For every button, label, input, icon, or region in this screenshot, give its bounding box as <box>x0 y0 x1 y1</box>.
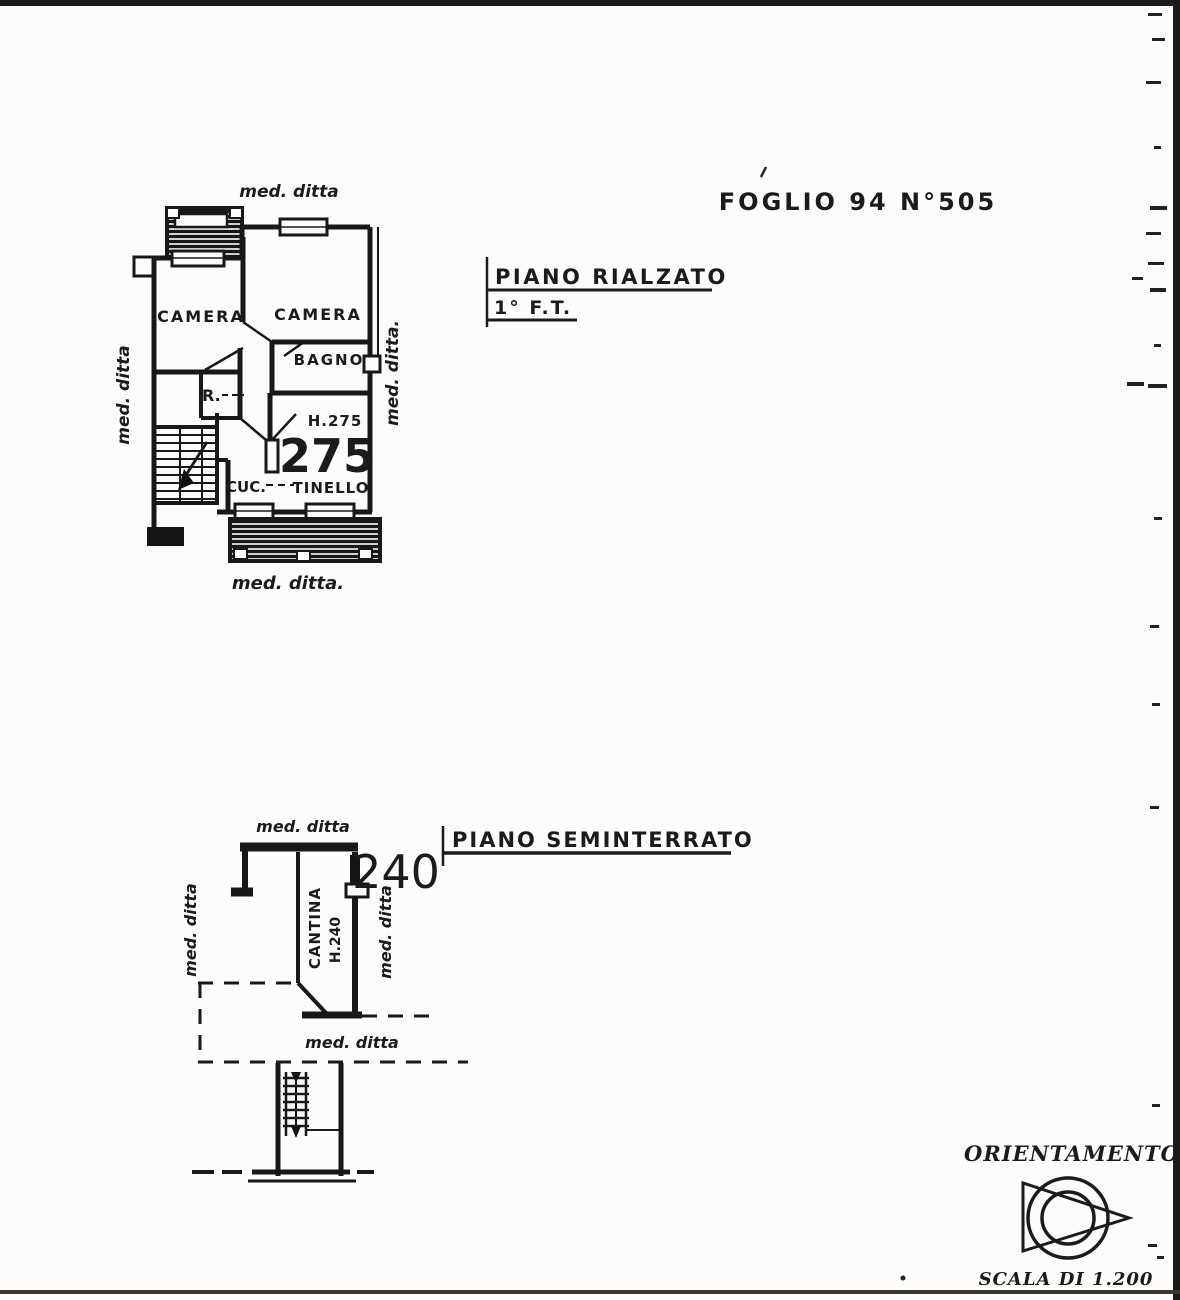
room-tinello: TINELLO <box>293 479 370 497</box>
height-value-big: 275 <box>279 429 375 483</box>
riser-label: R. <box>202 386 221 405</box>
balcony-window <box>175 214 227 227</box>
height-note: H.240 <box>328 917 344 964</box>
plan-rialzato-walls <box>134 208 380 561</box>
balcony-pillar <box>297 551 310 561</box>
top-border <box>0 0 1180 6</box>
scan-borders <box>0 0 1180 1300</box>
room-camera-left: CAMERA <box>157 307 245 326</box>
room-cucina: CUC. <box>226 478 266 496</box>
med-ditta-bottom-label: med. ditta <box>305 1033 399 1052</box>
balcony-corner-tab <box>230 208 242 218</box>
window <box>364 356 380 372</box>
height-value-big: 240 <box>352 845 440 899</box>
med-ditta-left-label: med. ditta <box>181 883 200 977</box>
plan1-title: PIANO RIALZATO <box>495 265 728 289</box>
flue <box>266 440 278 472</box>
plan2-title: PIANO SEMINTERRATO <box>452 828 754 852</box>
room-bagno: BAGNO <box>294 351 365 369</box>
med-ditta-top-label: med. ditta <box>256 817 350 836</box>
orientation-label: ORIENTAMENTO <box>964 1141 1180 1166</box>
door-swing <box>243 322 272 342</box>
door-swing <box>205 348 243 370</box>
stair-arrow-head <box>291 1126 301 1138</box>
scale-label: SCALA DI 1.200 <box>979 1269 1154 1290</box>
stair-steps <box>154 435 217 499</box>
balcony-pillar <box>234 549 247 559</box>
med-ditta-bottom-label: med. ditta. <box>232 573 344 594</box>
plan-seminterrato-title-block: PIANO SEMINTERRATO <box>443 826 754 866</box>
orientation-block: ORIENTAMENTO SCALA DI 1.200 <box>964 1141 1180 1290</box>
height-note: H.275 <box>308 412 363 430</box>
door-swing <box>240 418 266 440</box>
wall-pier <box>147 527 184 546</box>
wall-diagonal <box>298 983 326 1013</box>
bottom-border <box>0 1290 1180 1294</box>
med-ditta-top-label: med. ditta <box>239 182 339 202</box>
floor-plan-drawing: FOGLIO 94 N°505 PIANO RIALZATO 1° F.T. <box>0 0 1180 1300</box>
med-ditta-left-label: med. ditta <box>114 345 134 445</box>
med-ditta-right-label: med. ditta <box>376 885 395 979</box>
plan-rialzato-title-block: PIANO RIALZATO 1° F.T. <box>487 257 728 327</box>
med-ditta-right-label: med. ditta. <box>383 320 403 426</box>
sheet-reference: FOGLIO 94 N°505 <box>719 188 997 216</box>
right-border <box>1173 0 1180 1300</box>
balcony-pillar <box>359 549 372 559</box>
scanned-floor-plan-page: FOGLIO 94 N°505 PIANO RIALZATO 1° F.T. <box>0 0 1180 1300</box>
plan1-subtitle: 1° F.T. <box>494 297 572 319</box>
balcony-corner-tab <box>167 208 179 218</box>
room-camera-right: CAMERA <box>274 305 362 324</box>
room-cantina: CANTINA <box>306 887 324 969</box>
